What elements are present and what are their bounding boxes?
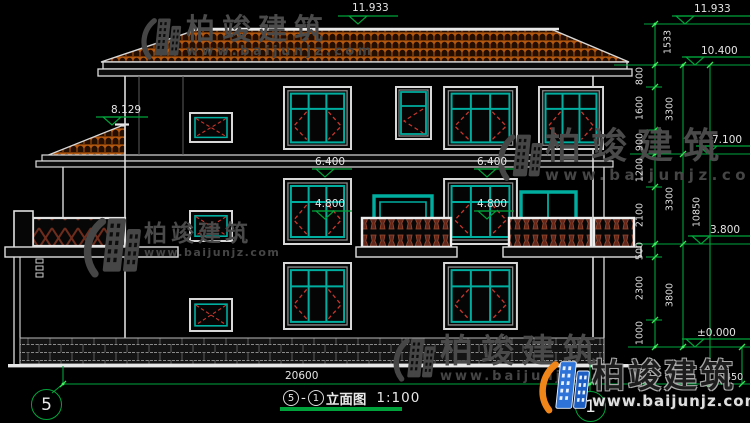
watermark-url: www.baijunjz.com bbox=[186, 44, 375, 60]
dim-seg: 2300 bbox=[635, 276, 645, 300]
brand-logo: 柏竣建筑 www.baijunjz.com bbox=[536, 356, 750, 414]
drawing-title: 5-1立面图1:100 bbox=[281, 388, 420, 408]
elevation-drawing-canvas: 柏竣建筑 www.baijunjz.com 柏竣建筑 www.baijunjz.… bbox=[0, 0, 750, 423]
axis-bubble-5: 5 bbox=[31, 389, 62, 420]
dim-ridge-eave: 1533 bbox=[663, 30, 673, 54]
watermark-url: www.baijunjz.com bbox=[144, 246, 280, 259]
level-ridge-label: 11.933 bbox=[352, 3, 389, 14]
level-ridge-right-label: 11.933 bbox=[694, 4, 731, 15]
dim-floor: 3800 bbox=[665, 283, 675, 307]
title-separator: - bbox=[301, 390, 306, 406]
brand-url: www.baijunjz.com bbox=[592, 392, 750, 411]
wing-roof bbox=[46, 125, 129, 157]
window bbox=[284, 87, 351, 149]
watermark-logo-icon bbox=[136, 14, 186, 60]
level-ground-label: ±0.000 bbox=[697, 328, 736, 339]
dim-seg: 800 bbox=[635, 67, 645, 85]
window-small bbox=[190, 299, 232, 331]
dim-floor: 3300 bbox=[665, 187, 675, 211]
dim-overall-width: 20600 bbox=[285, 371, 318, 382]
dim-seg: 1600 bbox=[635, 96, 645, 120]
watermark-left: 柏竣建筑 www.baijunjz.com bbox=[80, 210, 280, 280]
level-floor3-label: 7.100 bbox=[712, 135, 742, 146]
dim-total-height: 10850 bbox=[692, 197, 702, 227]
dim-seg: 2100 bbox=[635, 203, 645, 227]
title-axis-start: 5 bbox=[283, 390, 299, 406]
level-6400-label: 6.400 bbox=[477, 157, 507, 168]
window-small bbox=[190, 113, 232, 142]
window bbox=[444, 263, 517, 329]
dim-seg: 900 bbox=[635, 133, 645, 151]
axis-number: 5 bbox=[41, 395, 52, 415]
level-floor2-label: 3.800 bbox=[710, 225, 740, 236]
level-4800-label: 4.800 bbox=[315, 199, 345, 210]
main-eave-cornice bbox=[98, 62, 632, 76]
watermark-top: 柏竣建筑 www.baijunjz.com bbox=[136, 14, 375, 60]
dim-seg: 1000 bbox=[635, 321, 645, 345]
downspout-marks bbox=[36, 259, 43, 277]
window-narrow bbox=[396, 87, 431, 139]
level-4800-label: 4.800 bbox=[477, 199, 507, 210]
dimension-nodes bbox=[62, 23, 712, 386]
watermark-logo-icon bbox=[388, 334, 440, 382]
brand-logo-icon bbox=[536, 356, 592, 414]
watermark-name: 柏竣建筑 bbox=[186, 14, 375, 44]
level-wing-roof-label: 8.129 bbox=[111, 105, 141, 116]
dim-floor: 3300 bbox=[665, 97, 675, 121]
dim-seg: 500 bbox=[635, 242, 645, 260]
window bbox=[284, 263, 351, 329]
title-name: 立面图 bbox=[326, 388, 367, 408]
title-underline bbox=[280, 407, 402, 411]
terrace-pillar bbox=[14, 211, 33, 249]
watermark-name: 柏竣建筑 bbox=[144, 222, 280, 246]
title-scale: 1:100 bbox=[376, 390, 420, 406]
dim-seg: 1200 bbox=[635, 158, 645, 182]
watermark-url: www.baijunjz.com bbox=[545, 166, 750, 184]
level-eave-label: 10.400 bbox=[701, 46, 738, 57]
level-6400-label: 6.400 bbox=[315, 157, 345, 168]
watermark-logo-icon bbox=[80, 210, 144, 280]
windows-floor1 bbox=[284, 263, 517, 329]
brand-name: 柏竣建筑 bbox=[592, 359, 750, 392]
title-axis-end: 1 bbox=[308, 390, 324, 406]
